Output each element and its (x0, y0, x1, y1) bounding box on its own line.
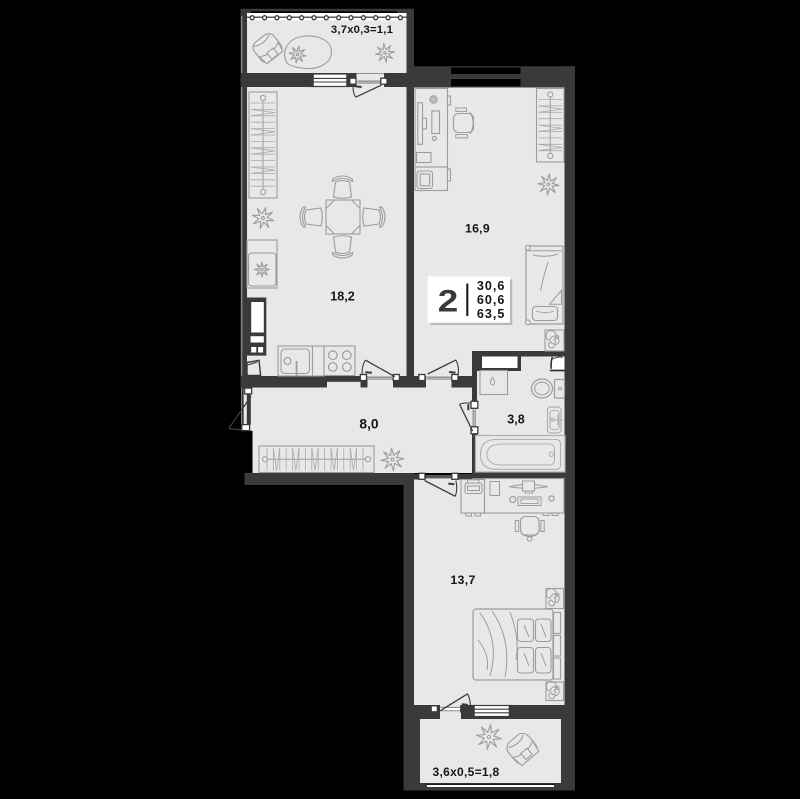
svg-text:3,7x0,3=1,1: 3,7x0,3=1,1 (331, 24, 393, 36)
svg-text:3,6x0,5=1,8: 3,6x0,5=1,8 (432, 765, 499, 779)
svg-text:3,8: 3,8 (507, 413, 524, 427)
svg-text:16,9: 16,9 (465, 221, 490, 235)
svg-text:60,6: 60,6 (477, 293, 506, 307)
svg-text:8,0: 8,0 (359, 417, 379, 432)
svg-text:13,7: 13,7 (450, 573, 475, 587)
svg-text:63,5: 63,5 (477, 307, 506, 321)
svg-text:30,6: 30,6 (477, 279, 506, 293)
svg-text:18,2: 18,2 (330, 290, 355, 304)
svg-text:2: 2 (438, 283, 459, 319)
